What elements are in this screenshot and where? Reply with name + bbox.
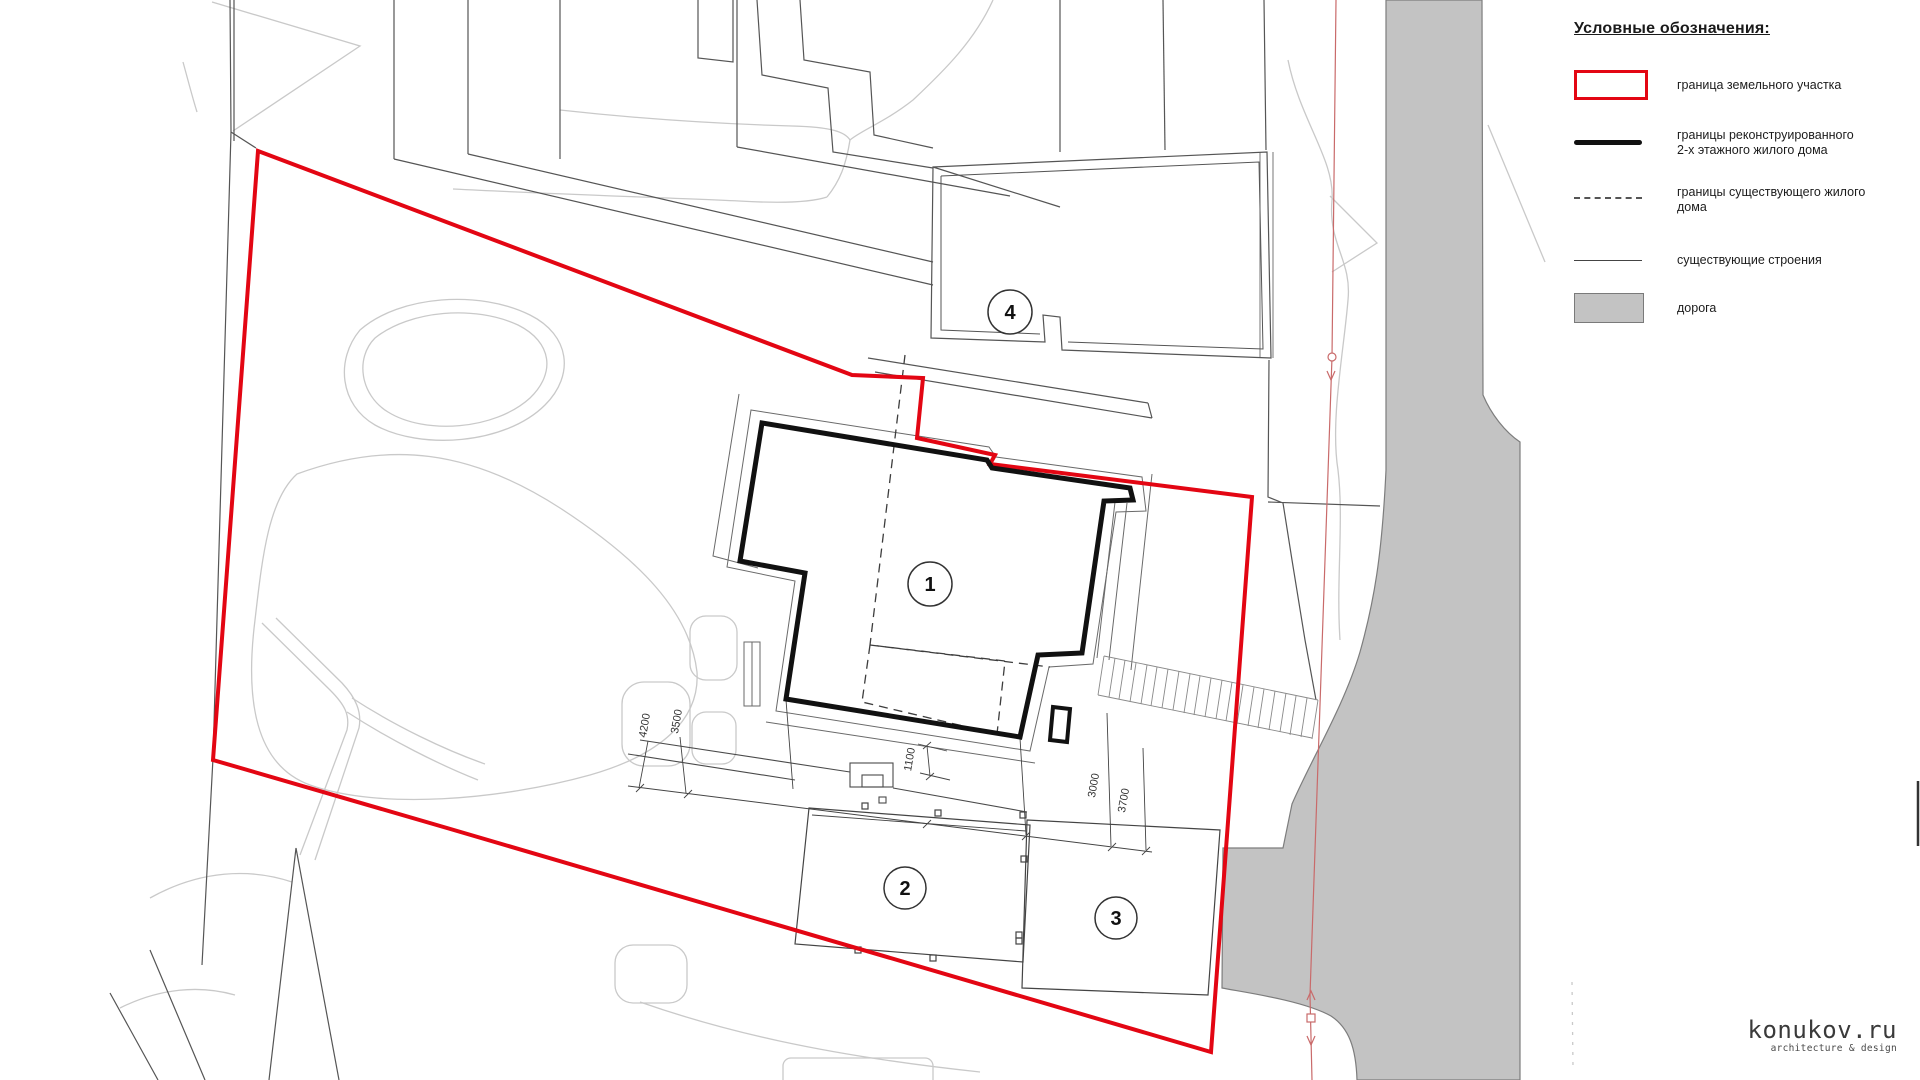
marker-2-label: 2 xyxy=(899,878,910,900)
existing-house-dashed xyxy=(862,355,1050,734)
marker-1-label: 1 xyxy=(924,574,935,596)
logo: konukov.ru architecture & design xyxy=(1748,1018,1898,1055)
parcel-boundary-swatch xyxy=(1574,70,1648,100)
dim-4200: 4200 xyxy=(637,712,653,738)
building-1-porch xyxy=(1050,707,1070,742)
legend-label-line2: дома xyxy=(1677,200,1865,215)
legend-label-line2: 2-х этажного жилого дома xyxy=(1677,143,1854,158)
road-swatch xyxy=(1574,293,1644,323)
legend: Условные обозначения: граница земельного… xyxy=(1574,12,1920,38)
parcel-underline xyxy=(202,0,256,965)
marker-3: 3 xyxy=(1095,897,1137,939)
legend-label-line1: границы реконструированного xyxy=(1677,128,1854,143)
building-4-outline xyxy=(868,152,1273,418)
marker-2: 2 xyxy=(884,867,926,909)
marker-1: 1 xyxy=(908,562,952,606)
existing-structures-line-swatch xyxy=(1574,260,1642,261)
site-plan-page: 4200 3500 1100 3000 3700 1 2 3 xyxy=(0,0,1920,1080)
dimension-labels: 4200 3500 1100 3000 3700 xyxy=(637,708,1132,813)
lower-terrace xyxy=(628,740,1027,812)
dim-3500: 3500 xyxy=(669,708,685,734)
marker-4-label: 4 xyxy=(1004,302,1016,324)
logo-name: konukov.ru xyxy=(1748,1018,1898,1042)
dim-3700: 3700 xyxy=(1116,787,1132,813)
dim-1100: 1100 xyxy=(902,747,918,772)
legend-label: границы существующего жилого дома xyxy=(1677,185,1865,215)
dimensions xyxy=(628,700,1152,855)
marker-4: 4 xyxy=(988,290,1032,334)
east-boundary-line xyxy=(1264,0,1380,700)
legend-title: Условные обозначения: xyxy=(1574,20,1920,38)
legend-label-line1: границы существующего жилого xyxy=(1677,185,1865,200)
site-plan-drawing: 4200 3500 1100 3000 3700 1 2 3 xyxy=(0,0,1920,1080)
reconstructed-line-swatch xyxy=(1574,140,1642,145)
legend-label: дорога xyxy=(1677,301,1716,316)
legend-label: границы реконструированного 2-х этажного… xyxy=(1677,128,1854,158)
small-structure-inner xyxy=(862,775,883,787)
existing-house-line-swatch xyxy=(1574,197,1642,199)
marker-3-label: 3 xyxy=(1110,908,1121,930)
legend-label: существующие строения xyxy=(1677,253,1822,268)
dim-3000: 3000 xyxy=(1086,772,1102,798)
existing-structures xyxy=(110,0,1918,1080)
legend-label: граница земельного участка xyxy=(1677,78,1841,93)
